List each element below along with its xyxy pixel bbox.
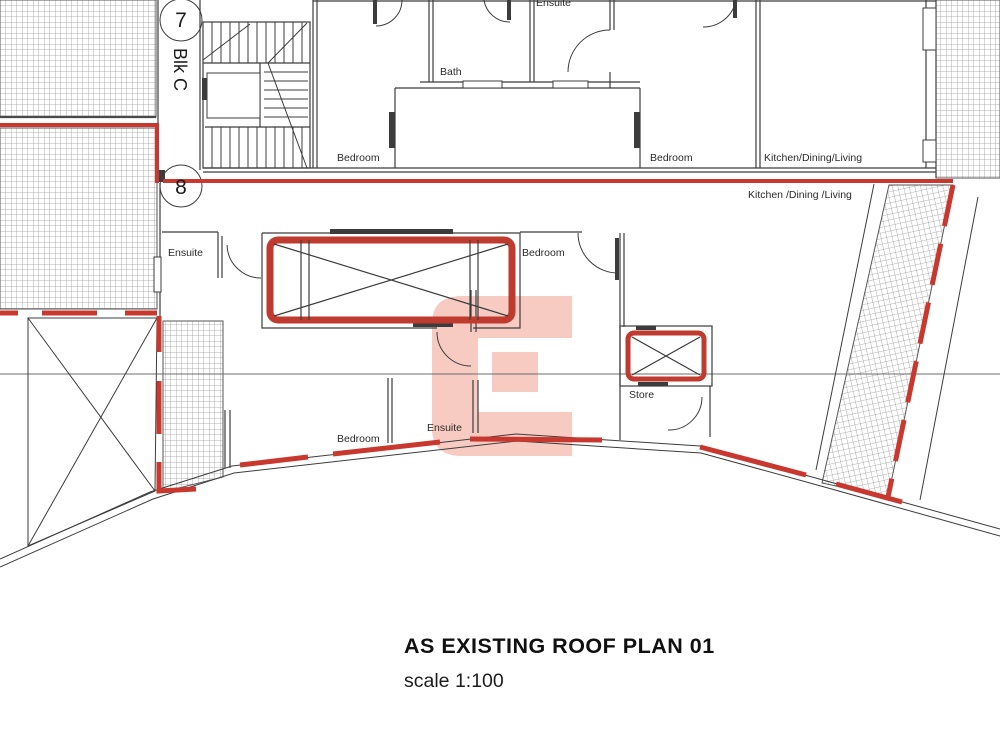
label-kitchen-mid: Kitchen /Dining /Living (748, 189, 852, 201)
grid-reference-labels: 7 Blk C 8 (170, 9, 190, 199)
label-bedroom-low: Bedroom (337, 433, 380, 445)
grid-label-7: 7 (175, 9, 187, 32)
drawing-scale: scale 1:100 (404, 670, 504, 692)
floor-plan-svg: Bedroom Bath Ensuite Bedroom Kitchen/Din… (0, 0, 1000, 750)
label-bedroom-top-left: Bedroom (337, 152, 380, 164)
label-bedroom-mid: Bedroom (522, 247, 565, 259)
label-bath: Bath (440, 66, 462, 78)
floor-plan-page: Bedroom Bath Ensuite Bedroom Kitchen/Din… (0, 0, 1000, 750)
rooflights (270, 240, 704, 379)
grid-label-8: 8 (175, 176, 187, 199)
drawing-title-block: AS EXISTING ROOF PLAN 01 scale 1:100 (404, 634, 715, 692)
label-bedroom-top-right: Bedroom (650, 152, 693, 164)
staircase (202, 22, 310, 168)
label-store: Store (629, 389, 654, 401)
drawing-title: AS EXISTING ROOF PLAN 01 (404, 634, 715, 658)
label-ensuite-low: Ensuite (427, 422, 462, 434)
block-label: Blk C (170, 48, 190, 91)
label-ensuite-mid: Ensuite (168, 247, 203, 259)
label-kitchen-top: Kitchen/Dining/Living (764, 152, 862, 164)
label-ensuite-top: Ensuite (536, 0, 571, 9)
